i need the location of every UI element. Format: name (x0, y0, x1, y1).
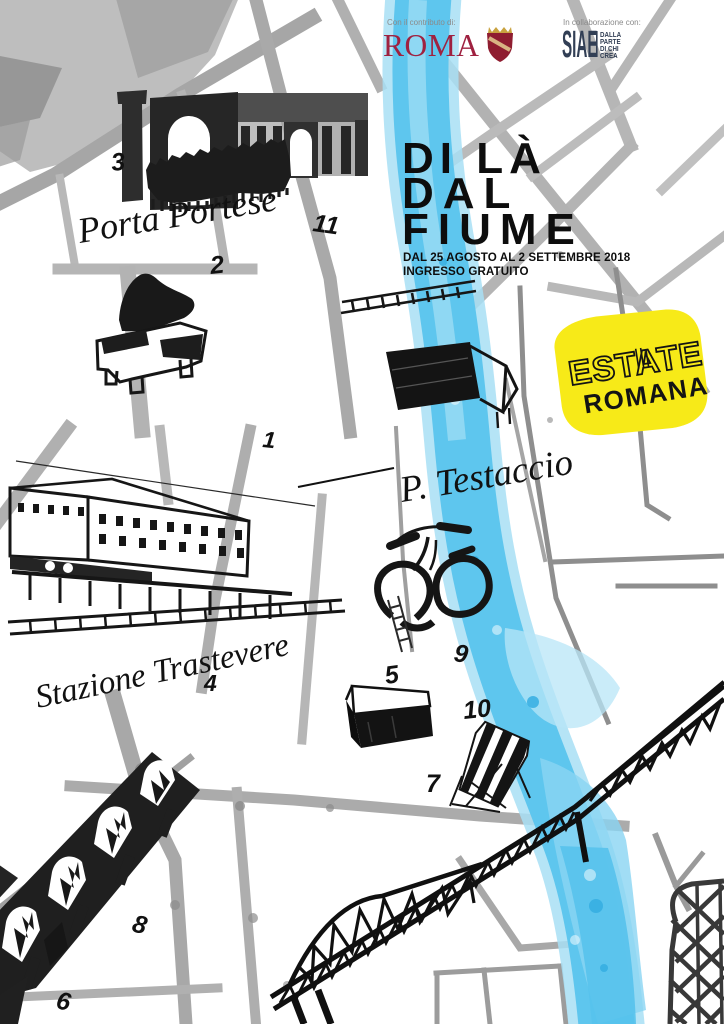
svg-text:DAL 25 AGOSTO AL 2 SETTEMBRE 2: DAL 25 AGOSTO AL 2 SETTEMBRE 2018 (403, 251, 631, 264)
svg-text:7: 7 (426, 770, 441, 798)
svg-text:CREA: CREA (600, 53, 618, 61)
svg-text:FIUME: FIUME (402, 205, 584, 254)
svg-text:2: 2 (208, 251, 226, 280)
svg-text:11: 11 (311, 209, 341, 240)
svg-text:ROMA: ROMA (383, 28, 480, 63)
svg-text:4: 4 (203, 670, 217, 696)
svg-text:1: 1 (261, 426, 276, 453)
svg-text:INGRESSO GRATUITO: INGRESSO GRATUITO (403, 265, 529, 278)
svg-text:SIAE: SIAE (562, 24, 597, 66)
svg-text:Con il contributo di:: Con il contributo di: (387, 18, 455, 27)
svg-text:10: 10 (462, 694, 493, 725)
